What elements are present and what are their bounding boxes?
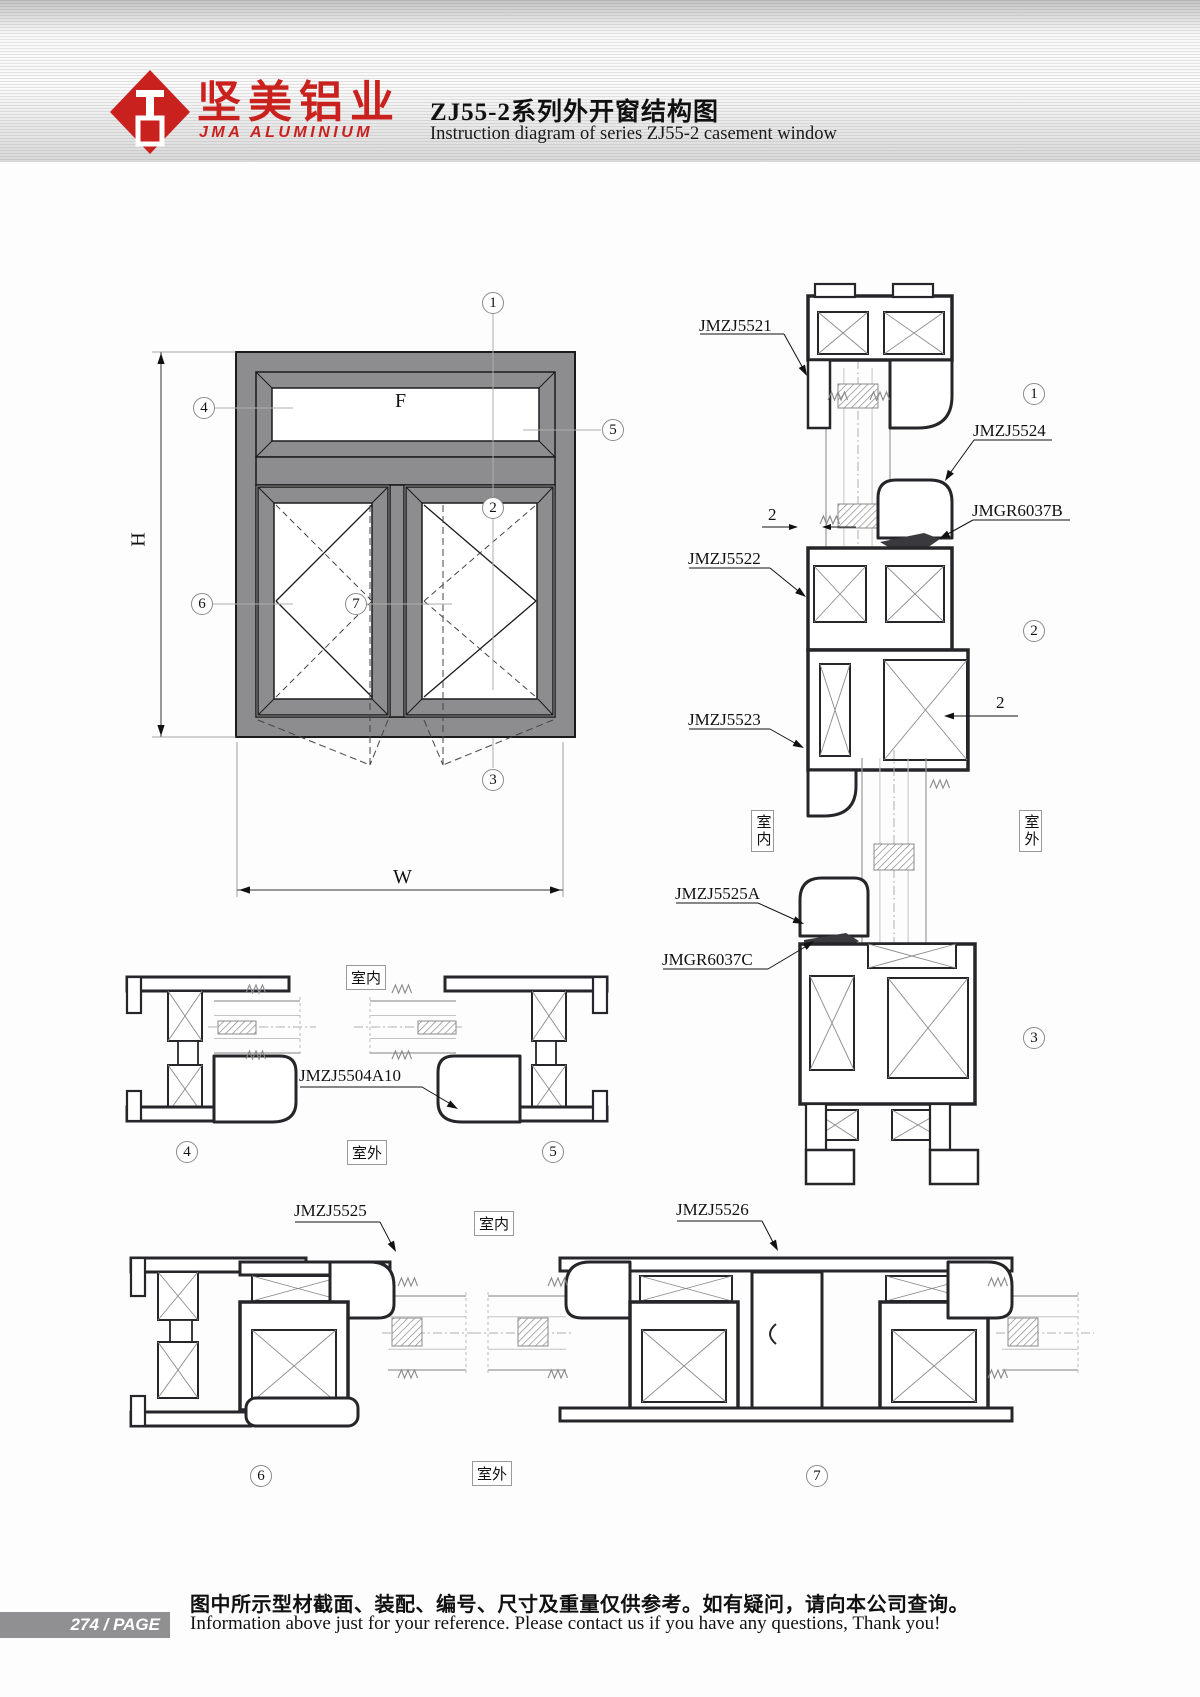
indoor-box-bottom-sections: 室内 [474, 1211, 514, 1236]
profile-label-jmzj5526: JMZJ5526 [676, 1200, 749, 1220]
dim-label-h: H [128, 532, 151, 546]
callout-4-elevation: 4 [193, 397, 215, 419]
catalog-page: 坚美铝业 JMA ALUMINIUM ZJ55-2系列外开窗结构图 Instru… [0, 0, 1200, 1697]
profile-label-jmzj5522: JMZJ5522 [688, 549, 761, 569]
fixed-pane-label: F [395, 390, 406, 413]
profile-label-jmzj5525a: JMZJ5525A [675, 884, 760, 904]
profile-label-jmzj5525: JMZJ5525 [294, 1201, 367, 1221]
callout-2-section: 2 [1023, 620, 1045, 642]
callout-7-section: 7 [806, 1465, 828, 1487]
callout-5-section: 5 [542, 1141, 564, 1163]
outdoor-box-bottom-sections: 室外 [472, 1461, 512, 1486]
callout-6-section: 6 [250, 1465, 272, 1487]
profile-label-jmzj5521: JMZJ5521 [699, 316, 772, 336]
callout-5-elevation: 5 [602, 419, 624, 441]
callout-1-section: 1 [1023, 383, 1045, 405]
page-number-badge: 274 / PAGE [0, 1612, 170, 1638]
profile-label-jmgr6037c: JMGR6037C [662, 950, 753, 970]
callout-6-elevation: 6 [191, 593, 213, 615]
callout-1-elevation: 1 [482, 292, 504, 314]
gap-dim-right: 2 [996, 693, 1005, 713]
indoor-box-mid-sections: 室内 [346, 965, 386, 990]
profile-label-jmzj5523: JMZJ5523 [688, 710, 761, 730]
callout-3-elevation: 3 [482, 769, 504, 791]
dim-label-w: W [393, 866, 412, 889]
footer-note-en: Information above just for your referenc… [190, 1613, 940, 1635]
outdoor-box-mid-sections: 室外 [347, 1140, 387, 1165]
outdoor-box-vertical-section: 室外 [1019, 810, 1042, 852]
profile-label-jmgr6037b: JMGR6037B [972, 501, 1063, 521]
callout-7-elevation: 7 [345, 593, 367, 615]
gap-dim-top: 2 [768, 505, 777, 525]
profile-label-jmzj5504a10: JMZJ5504A10 [299, 1066, 401, 1086]
callout-4-section: 4 [176, 1141, 198, 1163]
callout-2-elevation: 2 [482, 497, 504, 519]
indoor-box-vertical-section: 室内 [751, 810, 774, 852]
callout-3-section: 3 [1023, 1027, 1045, 1049]
profile-label-jmzj5524: JMZJ5524 [973, 421, 1046, 441]
